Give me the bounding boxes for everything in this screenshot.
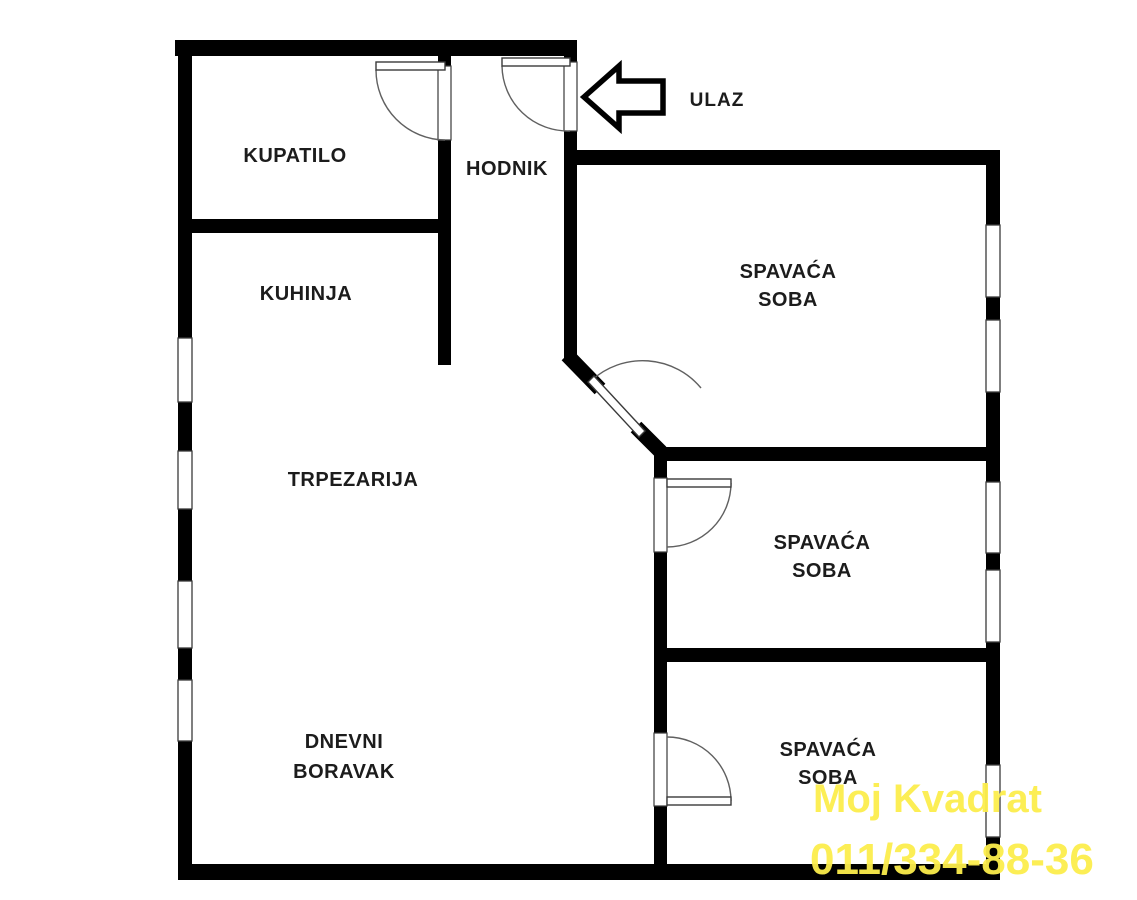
floor-plan-canvas: KUPATILO HODNIK ULAZ KUHINJA TRPEZARIJA … — [0, 0, 1137, 900]
window-left-1 — [178, 338, 192, 402]
room-label-dnevni-line1: DNEVNI — [305, 731, 384, 753]
room-labels: KUPATILO HODNIK ULAZ KUHINJA TRPEZARIJA … — [243, 90, 876, 789]
window-left-2 — [178, 451, 192, 509]
window-left-3 — [178, 581, 192, 648]
door-leaf-bedroom3 — [667, 797, 731, 805]
room-label-kupatilo: KUPATILO — [243, 145, 346, 167]
wall-top — [175, 40, 577, 56]
room-label-spavaca3-line1: SPAVAĆA — [780, 737, 877, 761]
door-arc-bedroom2 — [667, 483, 731, 547]
entrance-arrow-icon — [584, 66, 663, 128]
wall-bedroom2-bedroom3-divider — [654, 648, 1000, 662]
door-leaf-bedroom1 — [588, 376, 645, 437]
room-label-dnevni-line2: BORAVAK — [293, 761, 395, 783]
window-bedroom2-b — [986, 570, 1000, 642]
door-gap-bedroom2 — [654, 478, 667, 552]
room-label-spavaca1-line1: SPAVAĆA — [740, 259, 837, 283]
room-label-hodnik: HODNIK — [466, 158, 548, 180]
room-label-trpezarija: TRPEZARIJA — [288, 469, 419, 491]
windows — [178, 225, 1000, 837]
room-label-spavaca1-line2: SOBA — [758, 289, 818, 311]
door-gap-kupatilo — [438, 66, 451, 140]
door-leaf-kupatilo — [376, 62, 445, 70]
doors — [376, 58, 731, 806]
door-arc-entrance — [502, 66, 570, 131]
door-gap-entrance — [564, 62, 577, 131]
room-label-kuhinja: KUHINJA — [260, 283, 352, 305]
wall-bedroom1-top — [564, 150, 1000, 165]
door-arc-kupatilo — [376, 70, 445, 140]
door-arc-bedroom1 — [592, 361, 701, 388]
room-label-spavaca2-line2: SOBA — [792, 560, 852, 582]
door-leaf-entrance — [502, 58, 570, 66]
door-leaf-bedroom2 — [667, 479, 731, 487]
watermark-line2: 011/334-88-36 — [810, 835, 1094, 884]
watermark-line1: Moj Kvadrat — [813, 777, 1042, 821]
window-bedroom2-a — [986, 482, 1000, 553]
window-left-4 — [178, 680, 192, 741]
door-arc-bedroom3 — [667, 737, 731, 801]
door-gap-bedroom3 — [654, 733, 667, 806]
floor-plan: KUPATILO HODNIK ULAZ KUHINJA TRPEZARIJA … — [0, 0, 1137, 900]
wall-kupatilo-kuhinja — [178, 219, 450, 233]
wall-bedroom1-bedroom2-divider — [654, 447, 1000, 461]
window-bedroom1-b — [986, 320, 1000, 392]
watermark: Moj Kvadrat 011/334-88-36 — [810, 777, 1094, 884]
room-label-spavaca2-line1: SPAVAĆA — [774, 530, 871, 554]
window-bedroom1-a — [986, 225, 1000, 297]
entrance-label: ULAZ — [690, 90, 745, 111]
